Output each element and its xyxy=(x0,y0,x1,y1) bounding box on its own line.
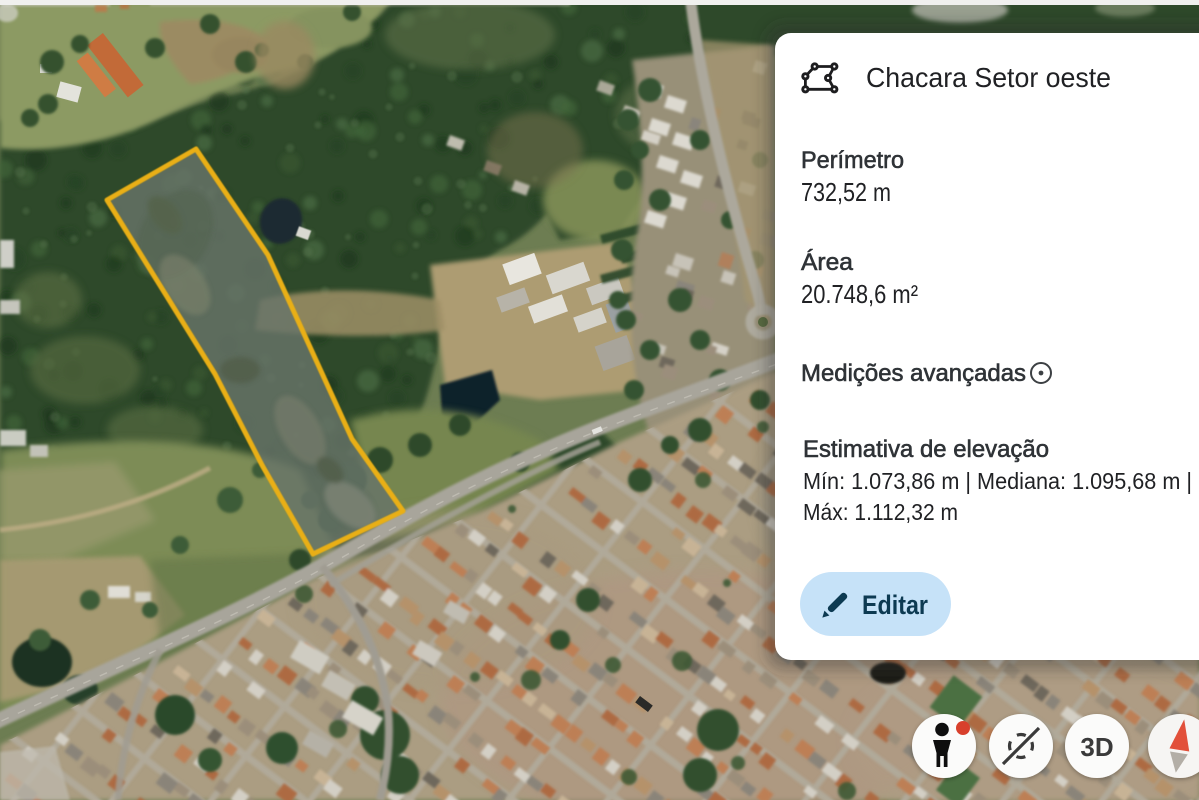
svg-text:Editar: Editar xyxy=(862,590,928,620)
svg-text:Medições avançadas: Medições avançadas xyxy=(801,360,1026,387)
svg-text:Perímetro: Perímetro xyxy=(801,147,904,174)
svg-text:3D: 3D xyxy=(1080,732,1113,762)
svg-text:732,52 m: 732,52 m xyxy=(801,177,891,207)
svg-text:Mín: 1.073,86 m | Mediana: 1.0: Mín: 1.073,86 m | Mediana: 1.095,68 m | xyxy=(803,468,1192,494)
svg-text:20.748,6 m²: 20.748,6 m² xyxy=(801,279,918,309)
svg-text:Área: Área xyxy=(801,249,854,276)
svg-text:Estimativa de elevação: Estimativa de elevação xyxy=(803,436,1049,463)
svg-text:Chacara Setor oeste: Chacara Setor oeste xyxy=(866,62,1111,93)
svg-text:Máx: 1.112,32 m: Máx: 1.112,32 m xyxy=(803,499,958,525)
